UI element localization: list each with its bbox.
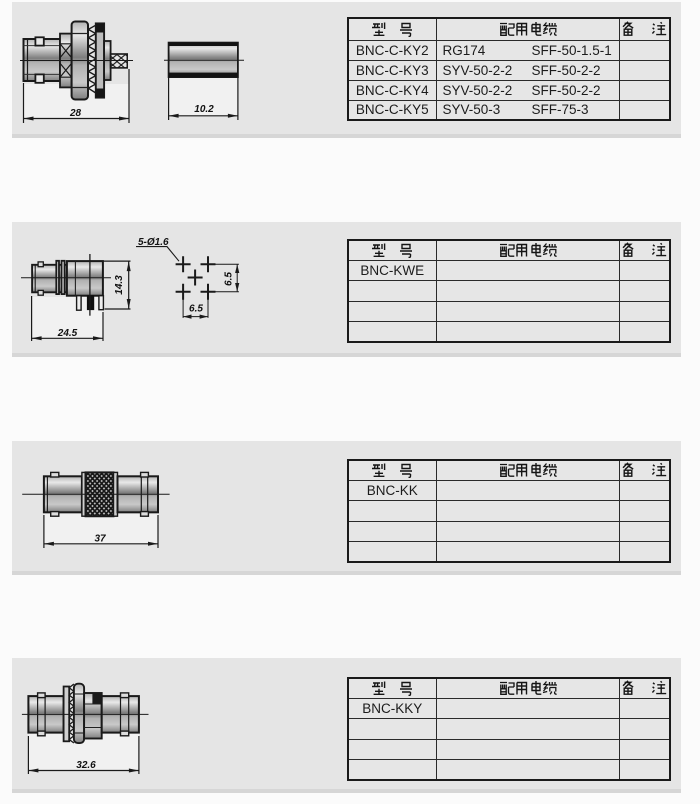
svg-text:6.5: 6.5: [189, 304, 203, 315]
svg-text:10.2: 10.2: [194, 104, 214, 115]
svg-text:28: 28: [69, 108, 82, 119]
svg-text:6.5: 6.5: [224, 272, 235, 286]
svg-text:14.3: 14.3: [114, 275, 125, 295]
svg-text:37: 37: [94, 533, 106, 544]
svg-text:32.6: 32.6: [76, 760, 96, 771]
svg-text:24.5: 24.5: [57, 328, 78, 339]
